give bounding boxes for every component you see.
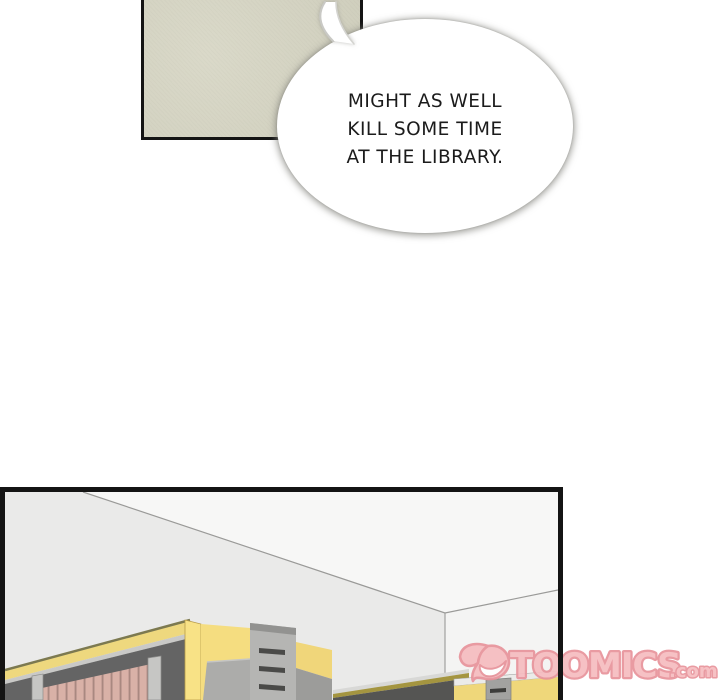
- comic-page: MIGHT AS WELL KILL SOME TIME AT THE LIBR…: [0, 0, 720, 700]
- speech-bubble-tail-icon: [308, 0, 360, 52]
- speech-line-3: AT THE LIBRARY.: [347, 144, 504, 172]
- shelf-post-right: [148, 656, 161, 700]
- speech-bubble-text: MIGHT AS WELL KILL SOME TIME AT THE LIBR…: [347, 80, 504, 172]
- toomics-mascot-icon: [460, 644, 509, 681]
- toomics-watermark: TOOMICS .com: [456, 640, 720, 688]
- speech-line-1: MIGHT AS WELL: [347, 88, 504, 116]
- shelf-post-left: [32, 674, 43, 700]
- shelf-end-ridge: [185, 620, 201, 700]
- speech-line-2: KILL SOME TIME: [347, 116, 504, 144]
- lower-slab: [203, 659, 250, 700]
- watermark-brand: TOOMICS: [510, 646, 681, 686]
- watermark-suffix: .com: [669, 661, 718, 682]
